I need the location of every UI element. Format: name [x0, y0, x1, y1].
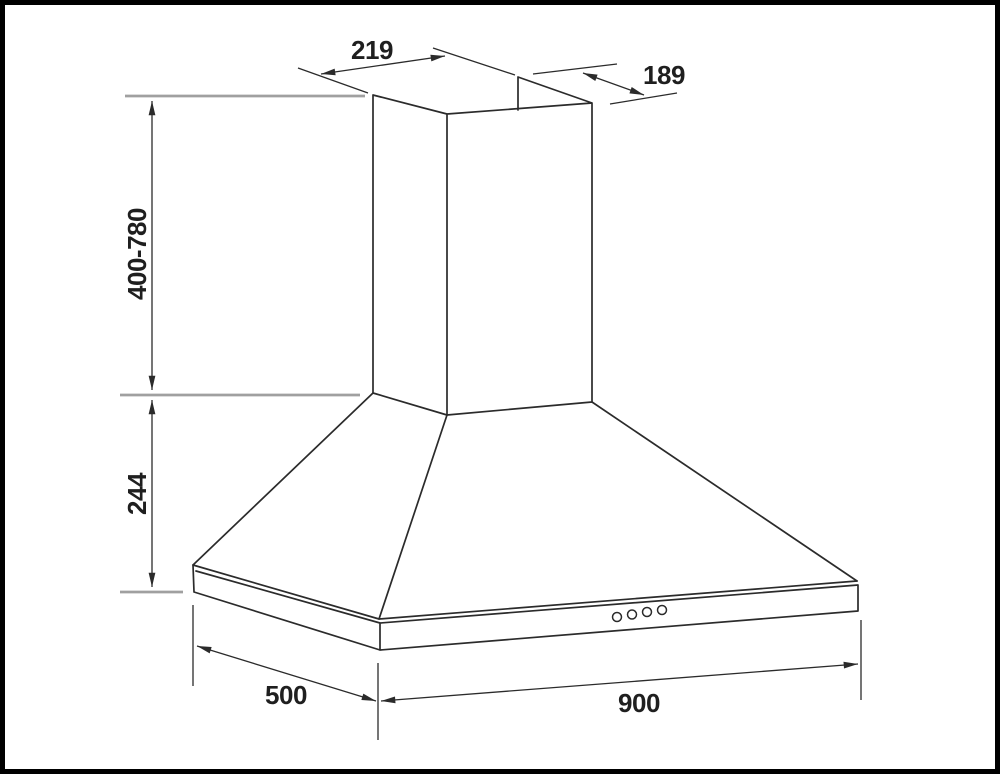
extension-line [298, 48, 515, 93]
dim-label-top-width: 219 [351, 35, 393, 65]
dimension-canopy-height: 244 [120, 400, 183, 592]
canopy-outline [193, 393, 857, 619]
rim-band-outline [193, 565, 858, 650]
dimension-chimney-top-width: 219 [298, 35, 515, 93]
dim-label-chimney-height: 400-780 [122, 208, 152, 300]
cooker-hood-dimension-drawing: 219 189 400-780 244 500 [0, 0, 1000, 774]
hood-outline [193, 77, 858, 650]
dim-label-top-depth: 189 [643, 60, 685, 90]
dimension-hood-width: 900 [381, 620, 861, 718]
dimension-chimney-height: 400-780 [120, 96, 365, 395]
control-button [643, 608, 652, 617]
control-button [613, 613, 622, 622]
dim-label-hood-width: 900 [618, 688, 660, 718]
chimney-duct-outline [373, 77, 592, 415]
dimension-hood-depth: 500 [193, 605, 378, 740]
control-button [628, 610, 637, 619]
control-buttons [613, 606, 667, 622]
dimension-chimney-top-depth: 189 [533, 60, 685, 104]
dimension-arrow-line [583, 73, 644, 95]
diagram-page: 219 189 400-780 244 500 [0, 0, 1000, 774]
control-button [658, 606, 667, 615]
extension-line [193, 605, 378, 740]
dim-label-canopy-height: 244 [122, 472, 152, 515]
dim-label-hood-depth: 500 [265, 680, 307, 710]
